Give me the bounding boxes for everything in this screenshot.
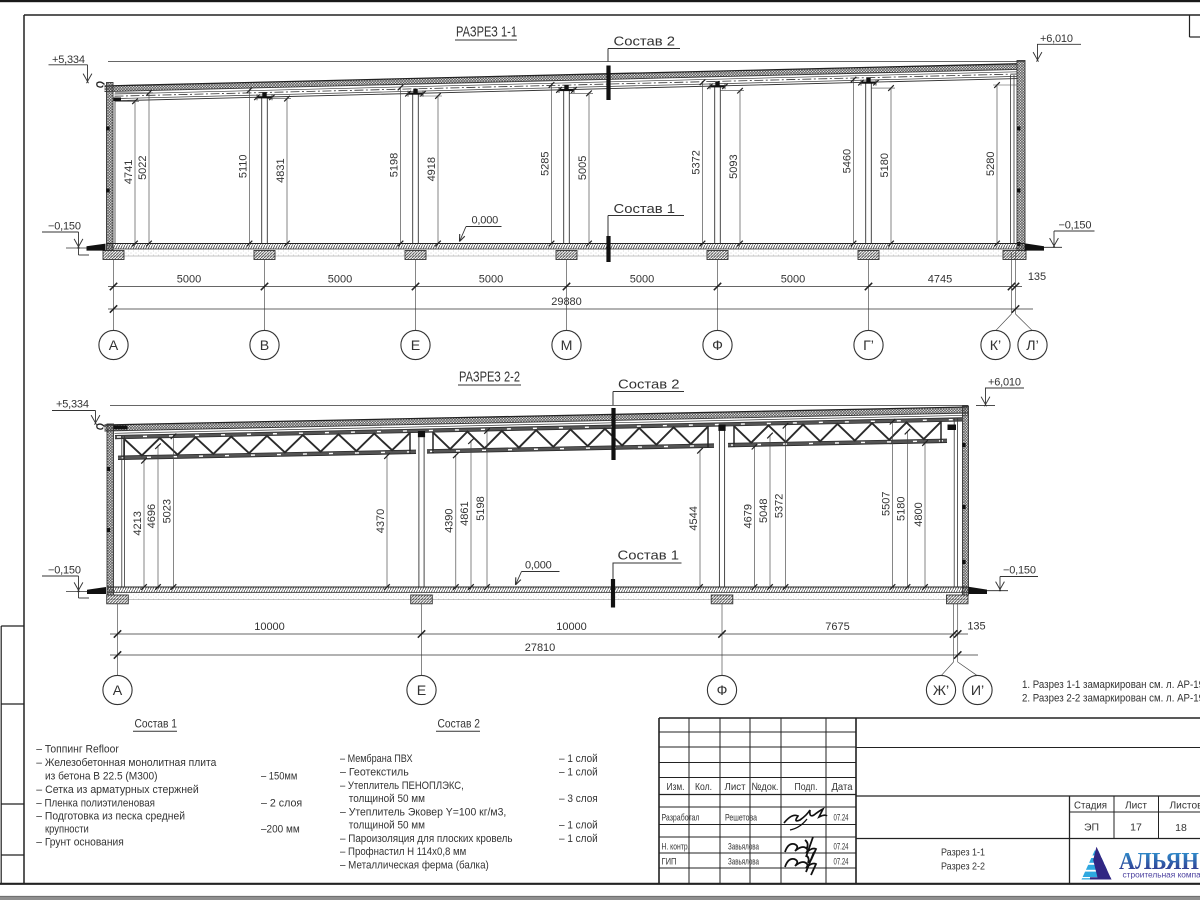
svg-text:+5,334: +5,334: [56, 399, 89, 411]
svg-text:4544: 4544: [688, 506, 700, 530]
svg-text:0,000: 0,000: [525, 560, 552, 572]
svg-text:4213: 4213: [132, 511, 144, 535]
svg-text:Состав 2: Состав 2: [614, 35, 676, 49]
svg-text:М: М: [561, 338, 573, 354]
svg-text:– Геотекстиль: – Геотекстиль: [340, 766, 409, 778]
svg-text:5048: 5048: [758, 499, 770, 523]
svg-text:из бетона В 22.5 (М300): из бетона В 22.5 (М300): [45, 771, 158, 783]
svg-text:– Пленка полиэтиленовая: – Пленка полиэтиленовая: [36, 797, 155, 809]
svg-text:Завьялова: Завьялова: [728, 842, 760, 852]
svg-text:5280: 5280: [985, 152, 997, 176]
svg-text:Лист: Лист: [725, 781, 746, 793]
svg-text:Стадия: Стадия: [1074, 800, 1107, 812]
svg-text:Разрез 2-2: Разрез 2-2: [941, 861, 985, 873]
svg-text:Решетова: Решетова: [725, 813, 758, 823]
svg-text:135: 135: [1028, 271, 1046, 283]
svg-text:Подп.: Подп.: [795, 781, 818, 793]
svg-text:– Грунт основания: – Грунт основания: [36, 837, 124, 849]
svg-text:5023: 5023: [161, 499, 173, 523]
svg-text:4370: 4370: [375, 509, 387, 533]
svg-text:+6,010: +6,010: [988, 377, 1021, 389]
svg-text:РАЗРЕЗ 2-2: РАЗРЕЗ 2-2: [459, 370, 520, 386]
svg-text:5000: 5000: [328, 274, 352, 286]
svg-text:– 2 слоя: – 2 слоя: [261, 797, 302, 809]
svg-text:Завьялова: Завьялова: [728, 857, 760, 867]
svg-text:5198: 5198: [388, 153, 400, 177]
svg-text:17: 17: [1130, 822, 1142, 834]
svg-text:5000: 5000: [479, 274, 503, 286]
svg-text:Ф: Ф: [717, 683, 728, 699]
svg-text:5460: 5460: [841, 149, 853, 173]
svg-text:– 150мм: – 150мм: [261, 771, 297, 783]
svg-text:Ф: Ф: [712, 338, 723, 354]
svg-text:4800: 4800: [913, 502, 925, 526]
svg-text:5180: 5180: [895, 497, 907, 521]
svg-text:Л’: Л’: [1026, 338, 1038, 354]
svg-text:18: 18: [1175, 822, 1187, 834]
svg-text:5372: 5372: [773, 494, 785, 518]
svg-text:Н. контр.: Н. контр.: [662, 842, 690, 852]
svg-text:7675: 7675: [825, 621, 849, 633]
svg-text:5180: 5180: [879, 153, 891, 177]
svg-text:– 1 слой: – 1 слой: [559, 833, 598, 845]
svg-text:0,000: 0,000: [472, 215, 499, 227]
svg-text:Е: Е: [417, 683, 426, 699]
svg-text:Ж’: Ж’: [933, 683, 949, 699]
svg-text:10000: 10000: [556, 621, 587, 633]
svg-text:4861: 4861: [459, 501, 471, 525]
svg-text:В: В: [260, 338, 269, 354]
svg-text:5198: 5198: [475, 496, 487, 520]
svg-text:Разработал: Разработал: [662, 813, 700, 823]
svg-text:– Пароизоляция для плоских кро: – Пароизоляция для плоских кровель: [340, 833, 513, 845]
svg-text:5110: 5110: [237, 154, 249, 178]
svg-text:– Мембрана ПВХ: – Мембрана ПВХ: [340, 753, 413, 765]
svg-text:4679: 4679: [742, 504, 754, 528]
svg-text:4741: 4741: [123, 160, 135, 184]
svg-text:29880: 29880: [551, 296, 582, 308]
svg-text:– 1 слой: – 1 слой: [559, 820, 598, 832]
svg-text:4831: 4831: [275, 158, 287, 182]
svg-text:Кол.: Кол.: [695, 781, 712, 793]
svg-text:К’: К’: [990, 338, 1001, 354]
svg-text:Листов: Листов: [1170, 800, 1200, 812]
svg-text:Состав 1: Состав 1: [614, 202, 676, 216]
svg-text:толщиной 50 мм: толщиной 50 мм: [349, 793, 425, 805]
svg-text:– Сетка из арматурных стержней: – Сетка из арматурных стержней: [36, 784, 199, 796]
svg-text:строительная компания: строительная компания: [1123, 870, 1200, 880]
svg-text:– 1 слой: – 1 слой: [559, 753, 598, 765]
svg-text:07.24: 07.24: [834, 813, 849, 823]
svg-text:Лист: Лист: [1125, 800, 1147, 812]
svg-text:27810: 27810: [525, 642, 556, 654]
svg-text:+6,010: +6,010: [1040, 33, 1073, 45]
svg-text:5285: 5285: [539, 151, 551, 175]
svg-text:И’: И’: [971, 683, 984, 699]
svg-text:−0,150: −0,150: [48, 221, 81, 233]
svg-text:5005: 5005: [577, 156, 589, 180]
svg-text:крупности: крупности: [45, 824, 89, 836]
svg-text:РАЗРЕЗ 1-1: РАЗРЕЗ 1-1: [456, 25, 517, 41]
svg-text:Состав 2: Состав 2: [438, 717, 481, 731]
svg-text:07.24: 07.24: [834, 857, 849, 867]
svg-text:– Топпинг Refloor: – Топпинг Refloor: [36, 744, 119, 756]
svg-text:Изм.: Изм.: [667, 781, 685, 793]
svg-text:А: А: [113, 683, 123, 699]
svg-text:– Подготовка из песка средней: – Подготовка из песка средней: [36, 811, 185, 823]
svg-text:−0,150: −0,150: [48, 565, 81, 577]
svg-text:ЭП: ЭП: [1084, 822, 1099, 834]
svg-text:07.24: 07.24: [834, 842, 849, 852]
svg-text:−0,150: −0,150: [1059, 220, 1092, 232]
svg-text:–200 мм: –200 мм: [261, 824, 300, 836]
svg-text:5000: 5000: [177, 274, 201, 286]
svg-text:– Профнастил Н 114х0,8 мм: – Профнастил Н 114х0,8 мм: [340, 846, 466, 858]
svg-text:– Утеплитель Эковер Y=100 кг/м: – Утеплитель Эковер Y=100 кг/м3,: [340, 806, 506, 818]
svg-text:– 1 слой: – 1 слой: [559, 766, 598, 778]
svg-text:толщиной 50 мм: толщиной 50 мм: [349, 820, 425, 832]
svg-text:5000: 5000: [630, 274, 654, 286]
svg-text:Г’: Г’: [863, 338, 874, 354]
svg-text:4390: 4390: [444, 508, 456, 532]
svg-text:−0,150: −0,150: [1003, 565, 1036, 577]
svg-text:5022: 5022: [137, 155, 149, 179]
svg-text:– Железобетонная монолитная п: – Железобетонная монолитная плита: [36, 757, 217, 769]
svg-text:5000: 5000: [781, 274, 805, 286]
svg-text:ГИП: ГИП: [662, 857, 677, 867]
svg-text:5093: 5093: [728, 154, 740, 178]
svg-text:4745: 4745: [928, 274, 952, 286]
svg-text:2. Разрез 2-2 замаркирован см.: 2. Разрез 2-2 замаркирован см. л. АР-19: [1022, 693, 1200, 705]
svg-text:Состав 1: Состав 1: [135, 717, 178, 731]
svg-text:Состав 1: Состав 1: [618, 549, 680, 563]
svg-text:№док.: №док.: [752, 781, 779, 793]
svg-text:Дата: Дата: [832, 781, 853, 793]
svg-text:10000: 10000: [254, 621, 285, 633]
svg-text:4696: 4696: [146, 504, 158, 528]
svg-text:5372: 5372: [690, 150, 702, 174]
svg-text:4918: 4918: [426, 157, 438, 181]
svg-text:5507: 5507: [880, 492, 892, 516]
svg-text:А: А: [109, 338, 119, 354]
svg-text:– 3 слоя: – 3 слоя: [559, 793, 598, 805]
svg-text:– Утеплитель ПЕНОПЛЭКС,: – Утеплитель ПЕНОПЛЭКС,: [340, 780, 464, 792]
svg-text:Разрез 1-1: Разрез 1-1: [941, 847, 985, 859]
svg-text:Состав 2: Состав 2: [618, 378, 680, 392]
svg-text:135: 135: [967, 621, 985, 633]
svg-text:Е: Е: [411, 338, 420, 354]
svg-text:– Металлическая ферма (балка): – Металлическая ферма (балка): [340, 859, 489, 871]
svg-text:1. Разрез 1-1 замаркирован см.: 1. Разрез 1-1 замаркирован см. л. АР-19: [1022, 679, 1200, 691]
svg-text:+5,334: +5,334: [52, 54, 85, 66]
